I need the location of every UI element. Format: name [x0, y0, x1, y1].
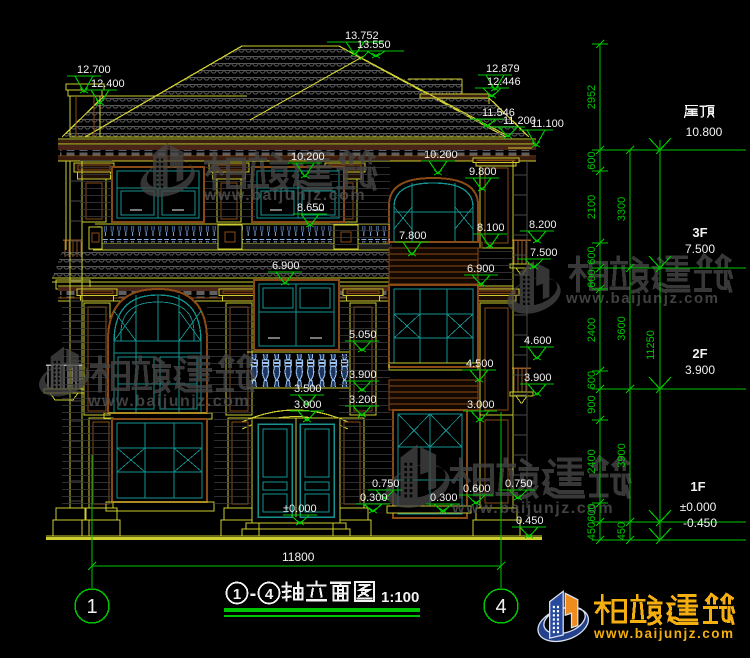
svg-text:1: 1 — [233, 586, 241, 603]
svg-text:10.200: 10.200 — [424, 149, 458, 161]
svg-text:4.600: 4.600 — [524, 335, 552, 347]
svg-text:2F: 2F — [692, 346, 707, 361]
svg-text:10.800: 10.800 — [686, 125, 723, 139]
svg-text:0.300: 0.300 — [360, 492, 388, 504]
svg-text:3600: 3600 — [616, 316, 628, 340]
svg-text:3.200: 3.200 — [349, 394, 377, 406]
svg-text:450: 450 — [616, 522, 628, 540]
svg-text:8.100: 8.100 — [477, 222, 505, 234]
svg-text:450: 450 — [586, 522, 598, 540]
svg-text:0.600: 0.600 — [463, 483, 491, 495]
svg-text:±0.000: ±0.000 — [680, 500, 717, 514]
svg-text:www.baijunjz.com: www.baijunjz.com — [203, 187, 366, 204]
svg-text:3.900: 3.900 — [349, 369, 377, 381]
svg-text:1: 1 — [86, 596, 97, 618]
svg-text:4: 4 — [265, 586, 274, 603]
svg-text:0.300: 0.300 — [430, 492, 458, 504]
svg-text:12.400: 12.400 — [91, 78, 125, 90]
svg-text:2400: 2400 — [586, 318, 598, 342]
svg-text:900: 900 — [586, 395, 598, 413]
svg-text:12.446: 12.446 — [487, 76, 521, 88]
svg-text:3900: 3900 — [616, 443, 628, 467]
svg-text:8.200: 8.200 — [529, 219, 557, 231]
svg-text:10.200: 10.200 — [291, 151, 325, 163]
svg-text:www.baijunjz.com: www.baijunjz.com — [593, 626, 735, 641]
svg-text:0.750: 0.750 — [505, 478, 533, 490]
svg-text:4.500: 4.500 — [466, 358, 494, 370]
svg-text:3.900: 3.900 — [685, 363, 715, 377]
svg-text:600: 600 — [586, 269, 598, 287]
svg-text:12.879: 12.879 — [486, 63, 520, 75]
svg-text:7.800: 7.800 — [399, 230, 427, 242]
svg-text:12.700: 12.700 — [77, 64, 111, 76]
svg-text:6.900: 6.900 — [272, 260, 300, 272]
svg-text:8.650: 8.650 — [297, 202, 325, 214]
svg-text:0.450: 0.450 — [516, 515, 544, 527]
svg-text:0.750: 0.750 — [372, 478, 400, 490]
svg-text:1:100: 1:100 — [381, 589, 419, 606]
svg-text:11.100: 11.100 — [531, 118, 564, 130]
svg-text:-0.450: -0.450 — [683, 516, 717, 530]
svg-text:6.900: 6.900 — [467, 263, 495, 275]
svg-text:600: 600 — [586, 246, 598, 264]
svg-text:600: 600 — [586, 371, 598, 389]
svg-text:11800: 11800 — [282, 550, 315, 564]
svg-text:4: 4 — [495, 596, 506, 618]
svg-text:9.800: 9.800 — [469, 166, 497, 178]
svg-text:3.000: 3.000 — [294, 399, 322, 411]
svg-text:3F: 3F — [692, 225, 707, 240]
svg-text:3.000: 3.000 — [467, 399, 495, 411]
svg-text:3.900: 3.900 — [524, 372, 552, 384]
svg-text:2100: 2100 — [586, 195, 598, 219]
svg-text:7.500: 7.500 — [530, 247, 558, 259]
svg-text:13.550: 13.550 — [357, 39, 391, 51]
svg-text:600: 600 — [586, 503, 598, 521]
svg-text:±0.000: ±0.000 — [283, 503, 317, 515]
svg-text:2952: 2952 — [586, 85, 598, 109]
svg-text:2400: 2400 — [586, 449, 598, 473]
svg-text:3300: 3300 — [616, 197, 628, 221]
svg-text:7.500: 7.500 — [685, 242, 715, 256]
svg-text:-: - — [250, 583, 257, 605]
svg-text:11250: 11250 — [645, 330, 657, 360]
svg-text:www.baijunjz.com: www.baijunjz.com — [565, 290, 719, 307]
svg-text:600: 600 — [586, 151, 598, 169]
svg-text:5.050: 5.050 — [349, 329, 377, 341]
svg-text:1F: 1F — [690, 479, 705, 494]
svg-text:www.baijunjz.com: www.baijunjz.com — [87, 393, 250, 410]
svg-text:3.500: 3.500 — [294, 383, 322, 395]
